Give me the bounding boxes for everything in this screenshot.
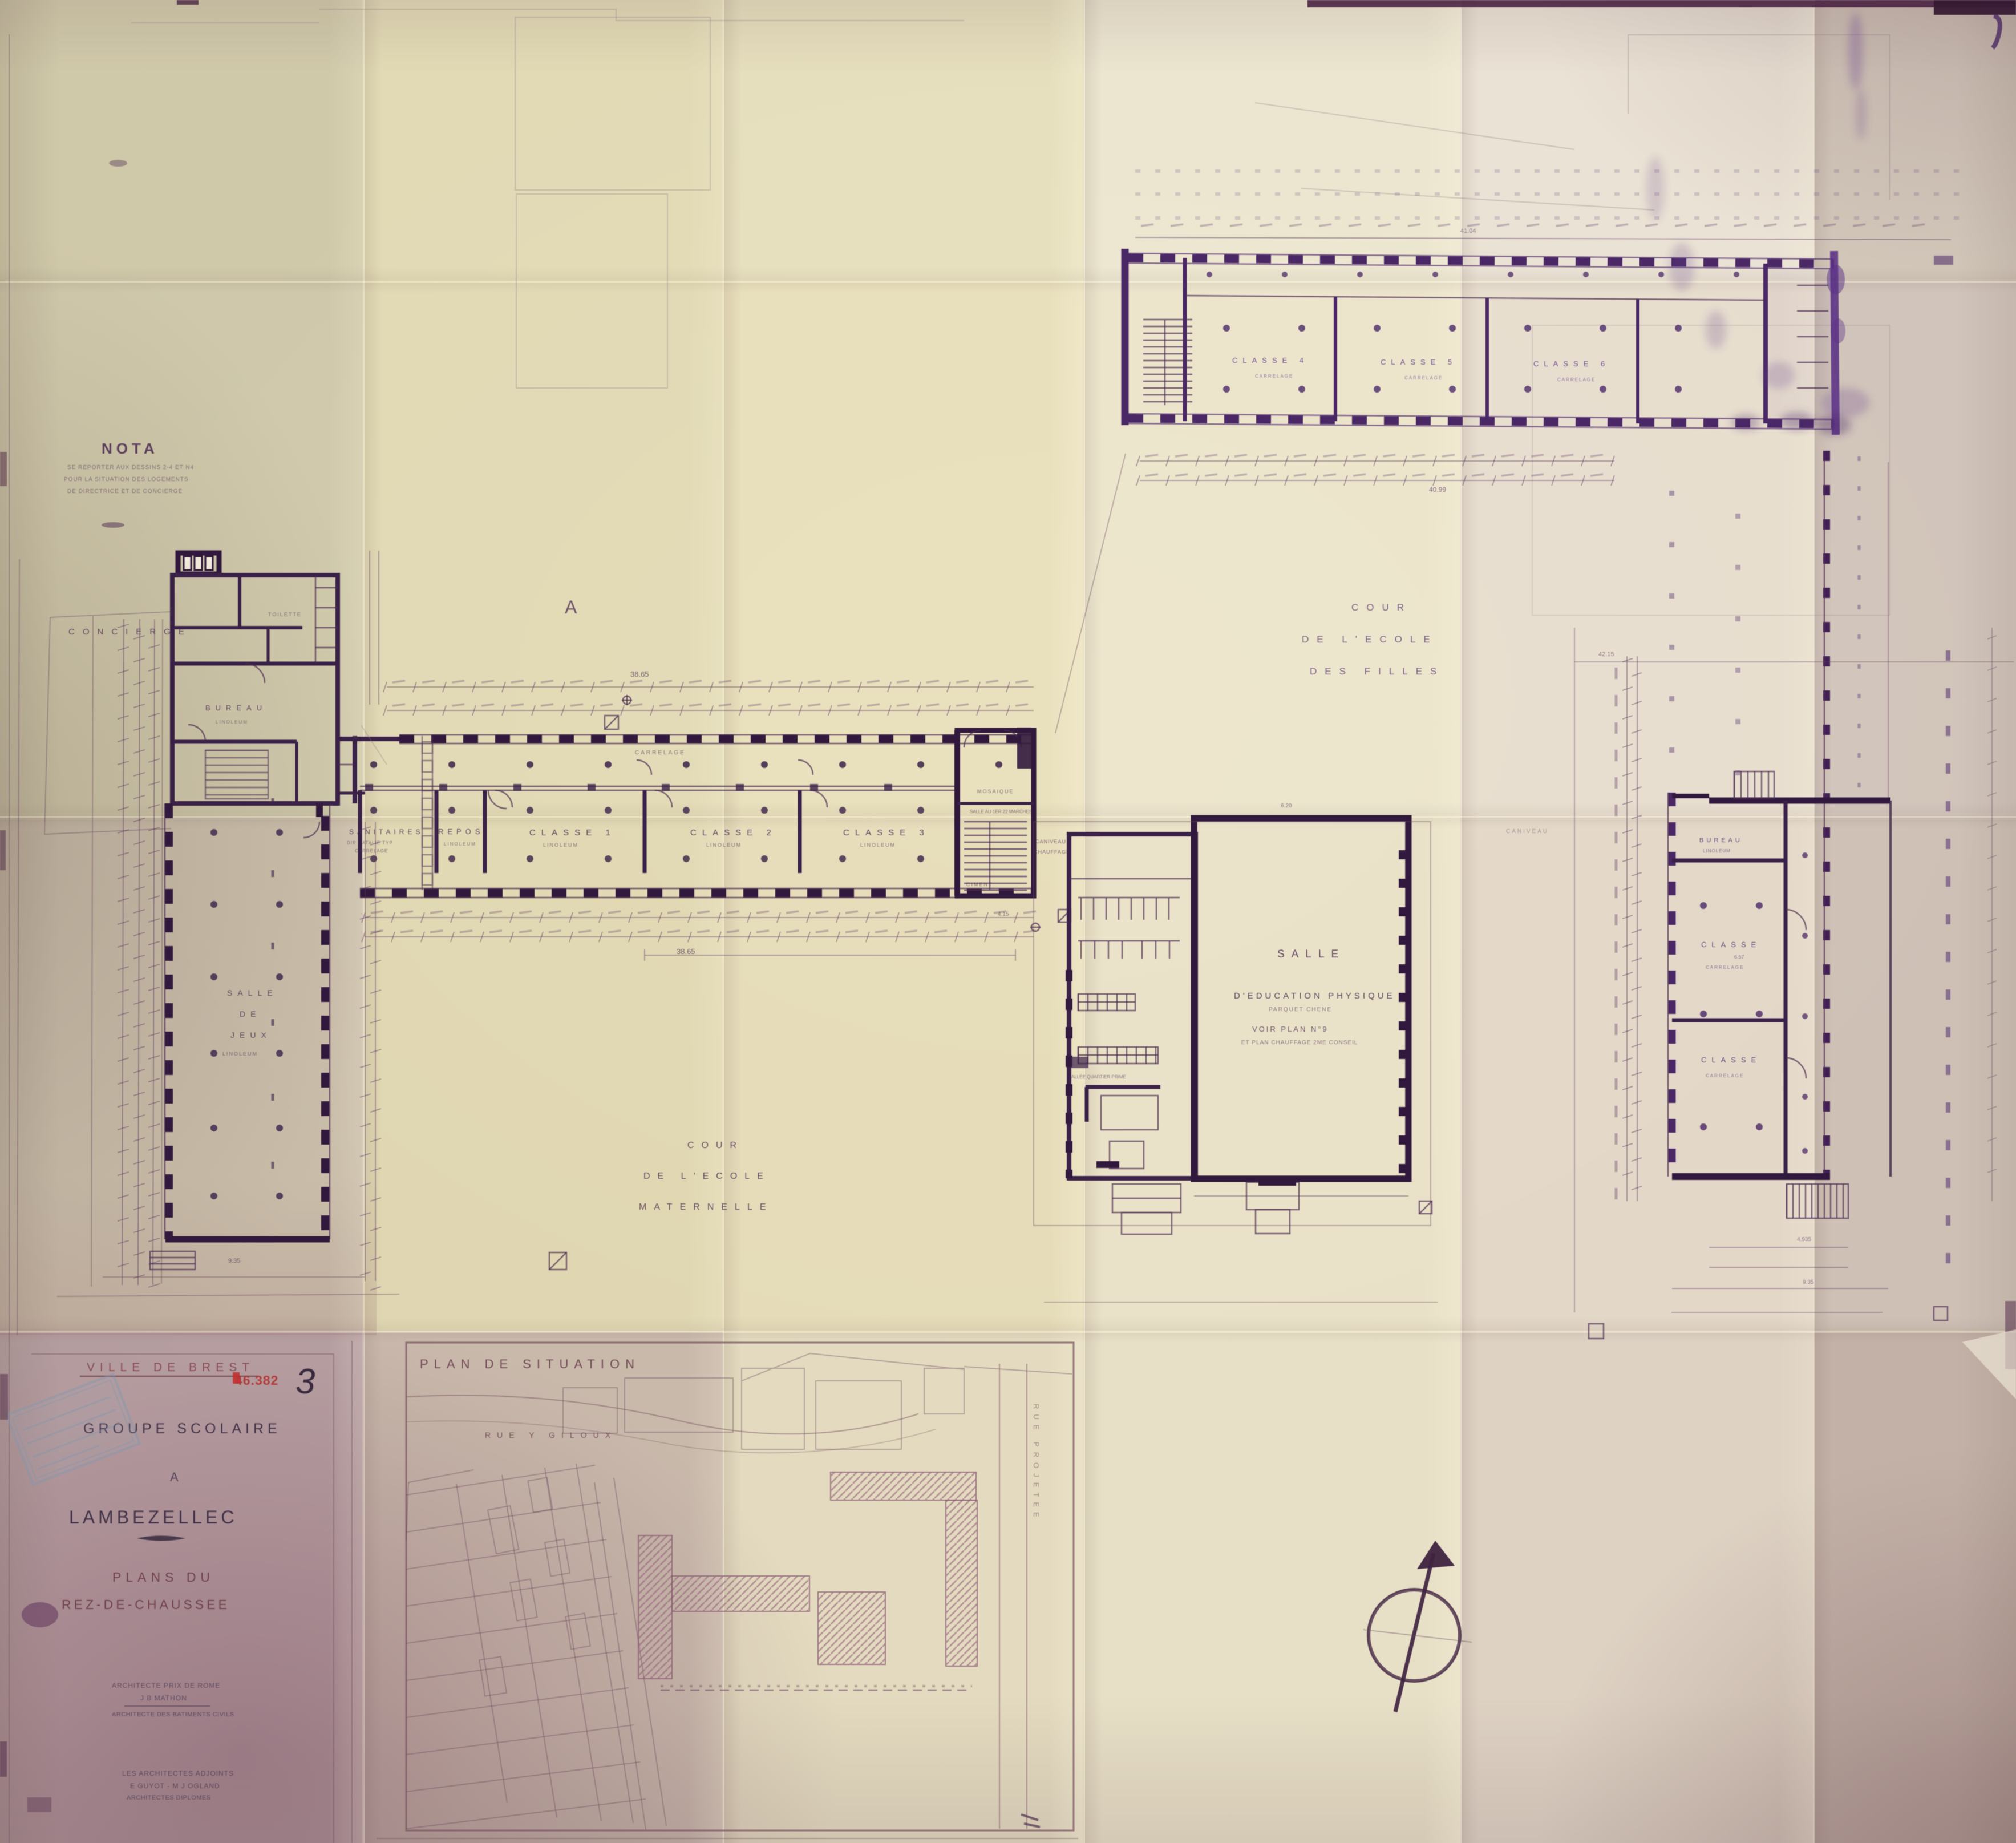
svg-text:DIR NATALIE TYP: DIR NATALIE TYP [347,840,393,846]
svg-text:SALLE: SALLE [1277,948,1345,960]
svg-text:CLASSE 3: CLASSE 3 [843,828,930,838]
svg-text:LAMBEZELLEC: LAMBEZELLEC [69,1507,237,1527]
svg-text:LINOLEUM: LINOLEUM [444,842,476,847]
svg-text:JEUX: JEUX [230,1030,272,1040]
svg-text:CLASSE 1: CLASSE 1 [529,828,616,838]
svg-text:SALLE: SALLE [227,988,278,997]
svg-text:ET PLAN CHAUFFAGE 2ME CONSEIL: ET PLAN CHAUFFAGE 2ME CONSEIL [1241,1040,1358,1046]
svg-text:COUR: COUR [1351,602,1412,613]
svg-text:CIMENT: CIMENT [966,882,993,887]
svg-text:DES FILLES: DES FILLES [1310,666,1444,677]
svg-text:A: A [565,597,577,617]
svg-text:CARRELAGE: CARRELAGE [1706,965,1744,970]
svg-text:LINOLEUM: LINOLEUM [860,842,896,848]
svg-text:SE REPORTER AUX DESSINS 2-4 ET: SE REPORTER AUX DESSINS 2-4 ET N4 [67,464,194,471]
svg-text:CARRELAGE: CARRELAGE [1255,374,1293,379]
svg-text:LINOLEUM: LINOLEUM [222,1051,258,1057]
svg-text:CLASSE 6: CLASSE 6 [1533,359,1610,368]
svg-text:ALLEE QUARTIER PRIME: ALLEE QUARTIER PRIME [1071,1074,1126,1080]
svg-text:MATERNELLE: MATERNELLE [639,1202,774,1212]
svg-text:LES ARCHITECTES ADJOINTS: LES ARCHITECTES ADJOINTS [122,1769,234,1777]
svg-text:D'EDUCATION PHYSIQUE: D'EDUCATION PHYSIQUE [1234,991,1395,1001]
svg-text:BUREAU: BUREAU [1699,837,1743,844]
svg-text:VILLE DE BREST: VILLE DE BREST [87,1361,254,1374]
svg-text:PARQUET CHENE: PARQUET CHENE [1269,1007,1332,1013]
svg-text:DE DIRECTRICE ET DE CONCIERGE: DE DIRECTRICE ET DE CONCIERGE [67,488,183,495]
svg-text:CLASSE 4: CLASSE 4 [1232,356,1309,365]
svg-text:RUE Y GILOUX: RUE Y GILOUX [485,1430,617,1440]
svg-text:9.35: 9.35 [228,1258,240,1264]
svg-text:PLAN DE SITUATION: PLAN DE SITUATION [420,1357,640,1371]
svg-text:41.04: 41.04 [1460,228,1476,235]
svg-text:CLASSE 2: CLASSE 2 [690,828,777,838]
svg-text:NOTA: NOTA [102,440,159,457]
svg-text:CARRELAGE: CARRELAGE [1557,377,1596,382]
svg-text:DE L'ECOLE: DE L'ECOLE [1302,634,1438,645]
svg-text:CANIVEAU: CANIVEAU [1035,839,1066,844]
svg-text:CLASSE 5: CLASSE 5 [1381,358,1457,366]
svg-text:REZ-DE-CHAUSSEE: REZ-DE-CHAUSSEE [62,1597,230,1612]
svg-text:38.65: 38.65 [677,947,695,956]
svg-text:TOILETTE: TOILETTE [268,612,302,617]
svg-text:RUE PROJETEE: RUE PROJETEE [1032,1404,1041,1522]
svg-text:REPOS: REPOS [438,827,484,836]
svg-text:LINOLEUM: LINOLEUM [543,842,578,848]
svg-text:PLANS DU: PLANS DU [112,1570,214,1585]
svg-text:40.99: 40.99 [1429,486,1446,494]
svg-text:46.382: 46.382 [235,1373,278,1388]
svg-text:LINOLEUM: LINOLEUM [1703,848,1731,854]
svg-text:CARRELAGE: CARRELAGE [355,848,388,854]
svg-text:E GUYOT - M J OGLAND: E GUYOT - M J OGLAND [130,1782,220,1790]
svg-text:LINOLEUM: LINOLEUM [706,842,742,848]
svg-text:CARRELAGE: CARRELAGE [1404,375,1443,381]
svg-text:CARRELAGE: CARRELAGE [1706,1073,1744,1078]
svg-text:BUREAU: BUREAU [205,704,267,712]
svg-text:38.65: 38.65 [630,670,649,678]
svg-text:MOSAIQUE: MOSAIQUE [977,789,1014,794]
svg-text:J B MATHON: J B MATHON [140,1694,187,1702]
svg-text:3: 3 [295,1362,315,1401]
svg-text:CARRELAGE: CARRELAGE [635,750,686,756]
svg-text:POUR LA SITUATION DES LOGEMENT: POUR LA SITUATION DES LOGEMENTS [64,476,189,483]
svg-text:42.15: 42.15 [1598,651,1614,658]
svg-text:6.20: 6.20 [1281,803,1292,809]
svg-text:CHAUFFAGE: CHAUFFAGE [1034,849,1070,855]
svg-text:DE: DE [240,1009,261,1018]
svg-text:A: A [170,1470,179,1484]
svg-text:CLASSE: CLASSE [1701,940,1761,949]
svg-text:6.57: 6.57 [1734,954,1744,960]
svg-text:4.935: 4.935 [1797,1236,1811,1243]
svg-text:CLASSE: CLASSE [1701,1056,1761,1064]
svg-text:LINOLEUM: LINOLEUM [216,720,248,725]
svg-text:COUR: COUR [687,1141,744,1150]
svg-text:SALLE AU 1ER 22 MARCHES: SALLE AU 1ER 22 MARCHES [970,809,1032,814]
svg-text:SANITAIRES: SANITAIRES [349,828,423,836]
svg-text:VOIR PLAN N°9: VOIR PLAN N°9 [1252,1025,1329,1033]
svg-text:ARCHITECTE PRIX DE ROME: ARCHITECTE PRIX DE ROME [112,1682,220,1690]
svg-text:CANIVEAU: CANIVEAU [1506,828,1549,835]
svg-text:9.35: 9.35 [1803,1279,1814,1286]
svg-text:ARCHITECTE DES BATIMENTS CIVIL: ARCHITECTE DES BATIMENTS CIVILS [112,1711,234,1718]
svg-text:ARCHITECTES DIPLOMES: ARCHITECTES DIPLOMES [127,1794,211,1801]
svg-text:DE L'ECOLE: DE L'ECOLE [643,1171,771,1181]
